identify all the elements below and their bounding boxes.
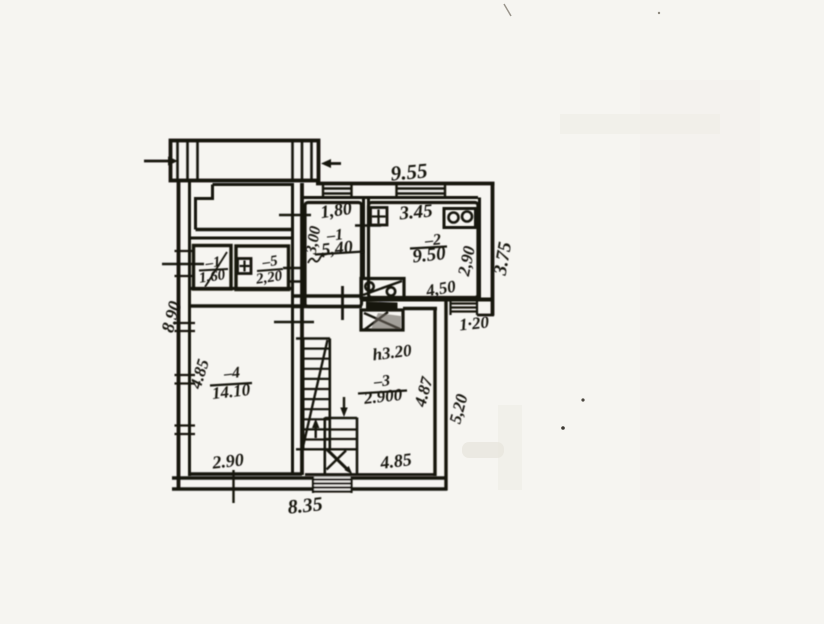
svg-text:8.35: 8.35 [287,493,324,519]
svg-text:1·20: 1·20 [458,312,490,334]
svg-text:3.45: 3.45 [398,200,434,224]
svg-text:5,40: 5,40 [320,236,353,259]
svg-text:14.10: 14.10 [211,380,252,403]
svg-text:9.50: 9.50 [411,243,447,267]
svg-text:4.85: 4.85 [378,449,413,473]
svg-text:–4: –4 [222,364,241,383]
svg-text:2.90: 2.90 [210,449,244,472]
svg-text:9.55: 9.55 [390,158,429,185]
